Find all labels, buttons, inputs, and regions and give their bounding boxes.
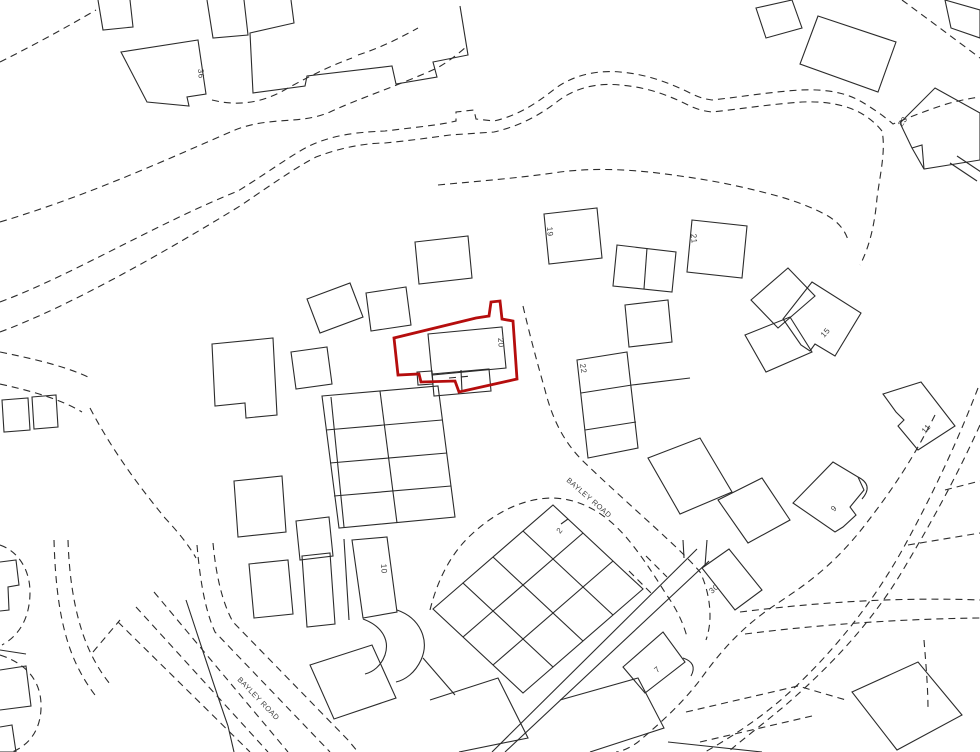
- plot-number-label: 15: [819, 326, 832, 339]
- map-canvas: 36 23 19 21 15 20 22 11 9 30 7 10 2 BAYL…: [0, 0, 980, 752]
- road-name-label: BAYLEY ROAD: [236, 675, 282, 722]
- plot-number-label-highlighted: 20: [496, 337, 506, 348]
- plot-number-label: 23: [896, 115, 909, 128]
- plot-number-label: 36: [196, 68, 206, 79]
- building-outlines: [0, 0, 980, 752]
- plot-number-label: 19: [545, 226, 555, 237]
- plot-number-label: 11: [920, 422, 933, 435]
- plot-number-label: 9: [829, 504, 839, 514]
- site-plan-map: 36 23 19 21 15 20 22 11 9 30 7 10 2 BAYL…: [0, 0, 980, 752]
- plot-number-label: 22: [578, 363, 588, 374]
- plot-number-label: 21: [689, 233, 699, 244]
- plot-number-label: 30: [707, 582, 720, 595]
- road-name-label: BAYLEY ROAD: [565, 476, 614, 520]
- plot-number-label: 7: [653, 664, 663, 674]
- plot-number-label: 2: [555, 526, 565, 536]
- plot-number-label: 10: [379, 564, 389, 575]
